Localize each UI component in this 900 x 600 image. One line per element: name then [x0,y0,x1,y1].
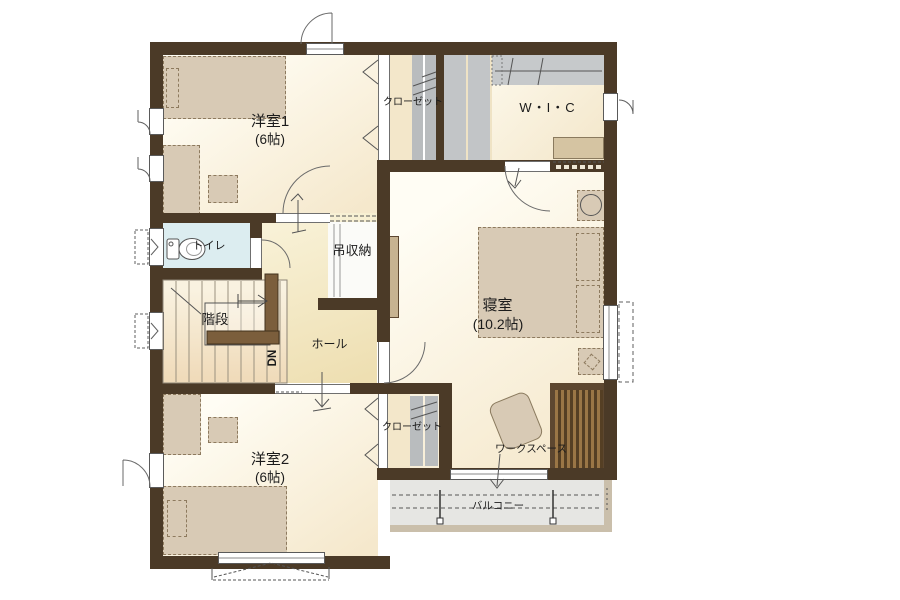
table-yoshitsu2 [208,417,238,443]
balcony-edge-right [604,480,612,532]
wall-toilet-south [150,268,262,280]
wall-tsurishuno-south [318,298,390,310]
room-label-workspace: ワークスペース [486,444,576,456]
side-table-bedroom [577,190,605,221]
dresser-yoshitsu1 [163,145,200,215]
wic-shelf-band [492,55,604,85]
desk-yoshitsu2 [163,394,201,455]
closet1-shelf-strip [425,55,436,162]
room-label-yoshitsu2: 洋室2 [210,452,330,469]
window-left-toilet [149,228,164,266]
wall-bedroom-north [377,160,617,172]
workspace-desk [550,383,607,478]
room-size-yoshitsu2: (6帖) [210,471,330,486]
pillow [166,68,179,108]
balcony-edge-bottom [390,525,612,532]
desk-wood-slats [555,390,603,474]
window-right-bedroom [603,305,618,380]
door-leaf-top [306,43,344,55]
table-yoshitsu1 [208,175,238,203]
room-label-closet1: クローゼット [376,97,450,108]
wic-counter [553,137,604,159]
room-label-yoshitsu1: 洋室1 [210,114,330,131]
door-opening-toilet [250,238,262,268]
wall-top [150,42,617,55]
stairs-dn-label: DN [260,343,286,373]
window-left-stairs [149,312,164,350]
pillow [576,285,600,333]
room-label-closet2: クローゼット [375,422,449,433]
pillow [576,233,600,281]
door-opening-bedroom [378,342,390,383]
floor-closet1 [390,55,412,162]
stool-seat [584,354,601,371]
window-right-wic [603,93,618,121]
door-opening-wic [505,161,550,172]
window-left-yoshitsu2 [149,453,164,488]
room-label-hall: ホール [302,338,357,351]
room-label-kaidan: 階段 [188,313,242,328]
bed-yoshitsu2 [163,486,287,555]
floor-plan-canvas: 洋室1 (6帖) クローゼット W・I・C 寝室 (10.2帖) トイレ 吊収納… [0,0,900,600]
floor-tsurishuno [328,222,377,298]
closet1-door-track [378,55,390,162]
room-size-shinshitsu: (10.2帖) [434,317,562,332]
bed-yoshitsu1 [163,56,286,119]
room-size-yoshitsu1: (6帖) [210,133,330,148]
door-opening-yoshitsu2 [275,384,350,394]
pillow [167,500,187,537]
room-label-balcony: バルコニー [458,501,538,513]
window-left-b [149,155,164,182]
round-stool-icon [580,194,602,216]
window-left-a [149,108,164,135]
wall-hall-south-a [150,383,275,394]
window-workspace [450,469,548,480]
room-label-shinshitsu: 寝室 [440,298,555,315]
door-opening-yoshitsu1 [276,213,330,223]
closet1-shelf-strip [412,55,423,162]
storage-zone-panel [468,55,490,162]
storage-zone-panel [444,55,466,162]
room-label-tsurishuno: 吊収納 [318,244,386,258]
stool-bedroom [578,348,605,375]
wall-hall-south-b [350,383,452,394]
room-label-toilet: トイレ [182,240,236,252]
room-label-wic: W・I・C [495,101,600,115]
window-bottom-yoshitsu2 [218,552,325,564]
